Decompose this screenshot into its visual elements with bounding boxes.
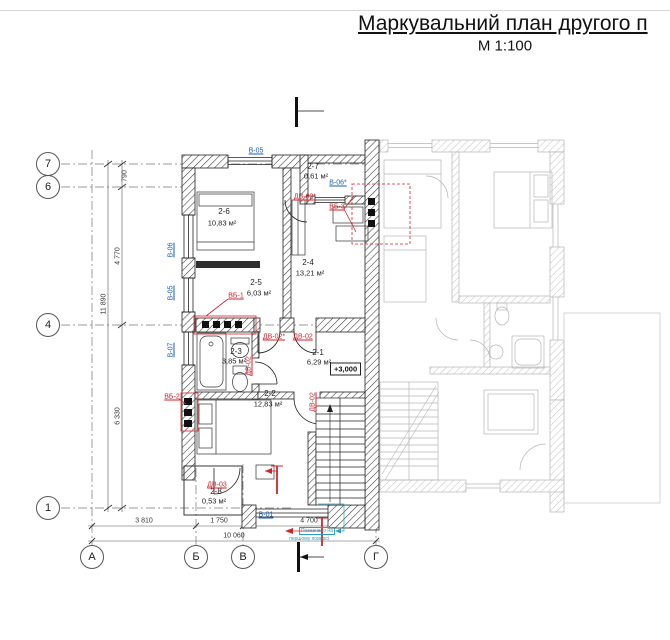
neighbor-unit bbox=[380, 140, 660, 512]
vent-mark-vb2: ВБ-2 bbox=[164, 394, 180, 401]
dim-3810: 3 810 bbox=[135, 518, 153, 525]
axis-circle-G: Г bbox=[364, 545, 388, 569]
axis-circle-7: 7 bbox=[36, 152, 60, 176]
room-2-7-number: 2-7 bbox=[307, 163, 319, 171]
room-2-6-area: 10,83 м² bbox=[208, 219, 237, 227]
room-2-2-area: 12,83 м² bbox=[254, 400, 283, 408]
door-mark-dv02-stairs: ДВ-02 bbox=[310, 392, 317, 412]
room-2-7-area: 0,61 м² bbox=[304, 172, 328, 180]
dim-11890: 11 890 bbox=[101, 294, 108, 315]
neighbor-walls bbox=[380, 140, 564, 512]
dim-790: 790 bbox=[122, 170, 129, 182]
axis-circle-V: В bbox=[231, 545, 255, 569]
room-2-1-area: 6,29 м² bbox=[307, 358, 331, 366]
elevation-mark: +3,000 bbox=[330, 363, 361, 376]
room-2-5-number: 2-5 bbox=[250, 279, 262, 287]
main-stairs bbox=[316, 398, 365, 505]
note-line-1: Позначено на bbox=[299, 527, 335, 535]
room-2-1-number: 2-1 bbox=[312, 349, 324, 357]
room-2-6-number: 2-6 bbox=[218, 208, 230, 216]
window-mark-v05-top: В-05 bbox=[249, 148, 264, 155]
dim-4770: 4 770 bbox=[115, 247, 122, 265]
note-line-2: першому поверсі bbox=[289, 536, 329, 542]
axis-label: 7 bbox=[45, 158, 51, 170]
axis-label: А bbox=[88, 551, 95, 563]
window-mark-v01: В-01 bbox=[259, 512, 274, 519]
axis-label: 6 bbox=[45, 181, 51, 193]
room-2-4-number: 2-4 bbox=[302, 259, 314, 267]
dim-4700: 4 700 bbox=[300, 518, 318, 525]
axis-circle-A: А bbox=[80, 545, 104, 569]
room-2-3-area: 3,85 м² bbox=[222, 357, 246, 365]
neighbor-terrace bbox=[564, 313, 660, 503]
door-mark-dv02-mid: ДВ-02 bbox=[293, 334, 313, 341]
dim-10060: 10 060 bbox=[223, 533, 244, 540]
axis-label: Б bbox=[192, 551, 199, 563]
axis-circle-1: 1 bbox=[36, 496, 60, 520]
vent-mark-vb3: ВБ-3 bbox=[329, 204, 345, 211]
dim-6330: 6 330 bbox=[115, 407, 122, 425]
vent-mark-vb1: ВБ-1 bbox=[228, 293, 244, 300]
axis-circle-B: Б bbox=[184, 545, 208, 569]
room-2-5-area: 6,03 м² bbox=[247, 289, 271, 297]
axis-label: 4 bbox=[45, 319, 51, 331]
axis-label: Г bbox=[373, 551, 379, 563]
room-2-8-number: 2-8 bbox=[210, 488, 222, 496]
dim-1750: 1 750 bbox=[210, 518, 228, 525]
room-2-4-area: 13,21 м² bbox=[296, 269, 325, 277]
door-mark-dv03: ДВ-03 bbox=[207, 482, 227, 489]
window-mark-v05-left: В-05 bbox=[168, 286, 175, 301]
window-mark-v06s: В-06* bbox=[329, 180, 347, 187]
window-mark-v07-left: В-07 bbox=[168, 343, 175, 358]
window-mark-v06-left: В-06 bbox=[168, 243, 175, 258]
room-2-3-number: 2-3 bbox=[230, 348, 242, 356]
room-2-8-area: 0,53 м² bbox=[202, 497, 226, 505]
axis-label: В bbox=[239, 551, 246, 563]
floor-plan-drawing bbox=[0, 0, 670, 640]
door-mark-dv02-bath: ДВ-02 bbox=[246, 356, 253, 376]
floor-plan-page: Маркувальний план другого п М 1:100 bbox=[0, 0, 670, 640]
axis-circle-6: 6 bbox=[36, 175, 60, 199]
room-2-2-number: 2-2 bbox=[264, 390, 276, 398]
neighbor-stairs bbox=[380, 382, 439, 480]
axis-label: 1 bbox=[45, 502, 51, 514]
axis-circle-4: 4 bbox=[36, 313, 60, 337]
door-mark-dv02s-top: ДВ-02* bbox=[294, 194, 316, 201]
door-mark-dv02s-mid: ДВ-02* bbox=[263, 334, 285, 341]
